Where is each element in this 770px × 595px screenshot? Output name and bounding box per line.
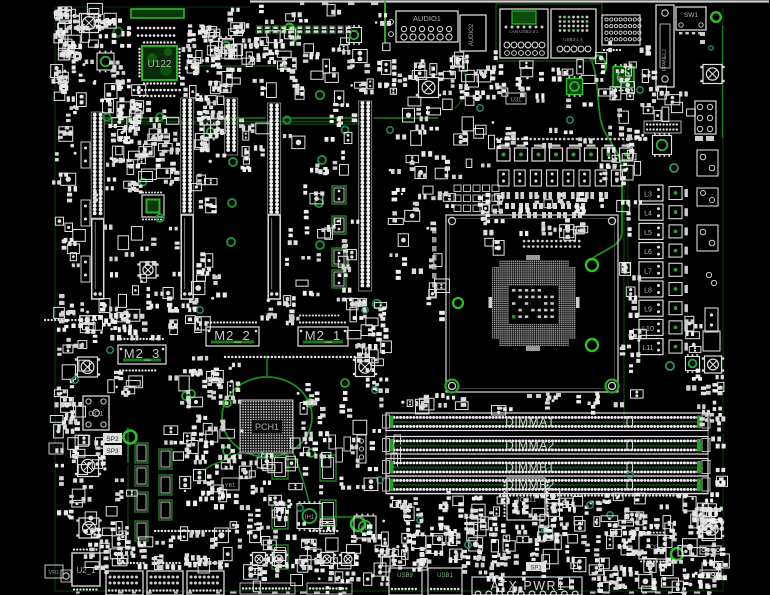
svg-text:FPANEL2: FPANEL2 <box>662 49 668 71</box>
svg-text:L6: L6 <box>644 249 652 256</box>
svg-text:U122: U122 <box>148 59 172 70</box>
svg-text:DIMMB1: DIMMB1 <box>505 461 555 475</box>
svg-text:DIMMA2: DIMMA2 <box>505 439 555 453</box>
svg-text:AUDIO2: AUDIO2 <box>469 23 475 46</box>
svg-text:L7: L7 <box>644 268 652 275</box>
svg-text:M2_1: M2_1 <box>305 328 342 343</box>
svg-text:IH1: IH1 <box>305 515 315 521</box>
svg-text:SP1: SP1 <box>530 566 542 572</box>
svg-text:U31: U31 <box>510 98 522 104</box>
svg-text:SW1: SW1 <box>684 12 698 19</box>
svg-text:YB1: YB1 <box>225 483 235 489</box>
svg-text:OC1: OC1 <box>88 409 103 418</box>
svg-text:DIMMA1: DIMMA1 <box>505 415 555 429</box>
svg-text:M2_3: M2_3 <box>124 346 161 361</box>
svg-text:M2_2: M2_2 <box>214 328 251 343</box>
svg-text:SP3: SP3 <box>106 448 119 455</box>
svg-text:USB1: USB1 <box>437 573 453 579</box>
svg-text:AUDIO1: AUDIO1 <box>413 14 441 23</box>
svg-text:L4: L4 <box>644 211 652 218</box>
svg-text:USB9: USB9 <box>397 573 413 579</box>
svg-text:PCH1: PCH1 <box>255 422 279 432</box>
svg-text:VR1: VR1 <box>49 570 60 576</box>
svg-text:L3: L3 <box>644 192 652 199</box>
svg-text:L11: L11 <box>642 345 653 352</box>
svg-text:L9: L9 <box>644 307 652 314</box>
svg-text:LAN USB3-2 1: LAN USB3-2 1 <box>509 29 539 34</box>
svg-text:SP2: SP2 <box>106 436 119 443</box>
svg-text:USB3-1 4: USB3-1 4 <box>563 37 583 42</box>
svg-text:L8: L8 <box>644 288 652 295</box>
svg-text:L5: L5 <box>644 230 652 237</box>
